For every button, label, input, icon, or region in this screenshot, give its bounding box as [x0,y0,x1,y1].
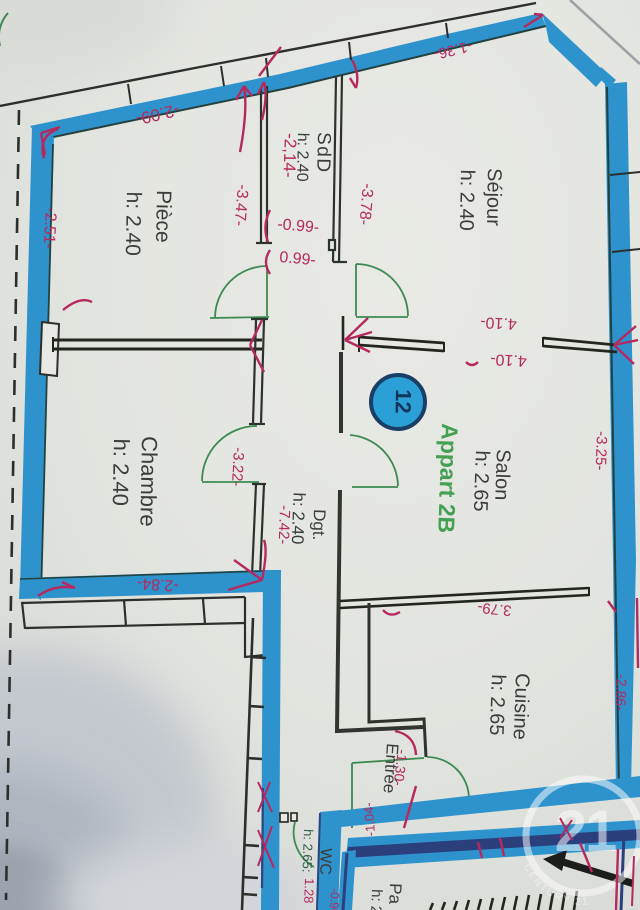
svg-text:Pa: Pa [385,883,405,905]
svg-text:-3.22-: -3.22- [228,447,247,487]
svg-text:h: 2.65:: h: 2.65: [299,829,316,873]
svg-text:WC: WC [316,848,334,875]
svg-text:-0.96:0: -0.96:0 [327,888,342,910]
svg-text:-1.04-: -1.04- [361,802,378,837]
svg-text:12: 12 [391,389,416,414]
svg-text:-3.25-: -3.25- [592,431,610,471]
svg-text:4.10-: 4.10- [480,313,517,332]
svg-text:-7.42-: -7.42- [275,505,293,545]
svg-text:-0.99-: -0.99- [277,216,320,237]
svg-text:-2,14-: -2,14- [279,133,300,178]
svg-text:-2.51-: -2.51- [40,207,59,250]
svg-text:Appart 2B: Appart 2B [433,423,463,534]
svg-text:-2.84-: -2.84- [136,574,179,594]
svg-text:-2.86-: -2.86- [613,674,630,711]
svg-text:-3.78-: -3.78- [355,183,376,226]
svg-text:h: 2: h: 2 [367,889,385,910]
svg-text:0.99-: 0.99- [279,249,317,269]
svg-text:-3.47-: -3.47- [230,184,251,227]
svg-text:3.79-: 3.79- [477,598,513,618]
svg-text:1.28: 1.28 [301,878,317,904]
svg-text:4.10-: 4.10- [490,350,527,369]
